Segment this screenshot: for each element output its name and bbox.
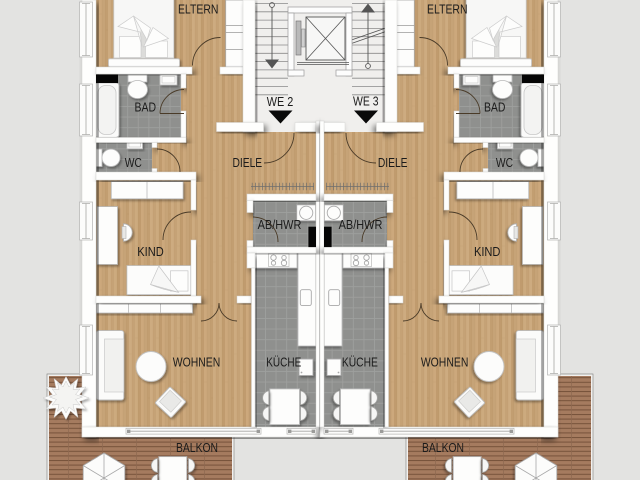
svg-text:WC: WC <box>125 155 142 170</box>
svg-text:KÜCHE: KÜCHE <box>266 354 301 369</box>
svg-text:ELTERN: ELTERN <box>427 2 468 17</box>
svg-text:BALKON: BALKON <box>422 440 464 455</box>
svg-text:KÜCHE: KÜCHE <box>342 354 378 369</box>
svg-text:WE 2: WE 2 <box>267 94 294 109</box>
svg-text:AB/HWR: AB/HWR <box>339 217 383 232</box>
svg-text:BAD: BAD <box>135 100 157 115</box>
svg-text:WOHNEN: WOHNEN <box>173 354 221 369</box>
svg-text:BAD: BAD <box>484 100 506 115</box>
svg-text:WOHNEN: WOHNEN <box>421 354 469 369</box>
svg-text:KIND: KIND <box>474 244 501 259</box>
svg-text:WE 3: WE 3 <box>353 94 379 109</box>
svg-text:KIND: KIND <box>137 244 164 259</box>
svg-text:AB/HWR: AB/HWR <box>258 217 302 232</box>
svg-text:WC: WC <box>496 155 513 170</box>
svg-text:ELTERN: ELTERN <box>178 2 219 17</box>
svg-text:DIELE: DIELE <box>378 155 408 170</box>
svg-text:BALKON: BALKON <box>176 440 218 455</box>
svg-text:DIELE: DIELE <box>232 155 262 170</box>
